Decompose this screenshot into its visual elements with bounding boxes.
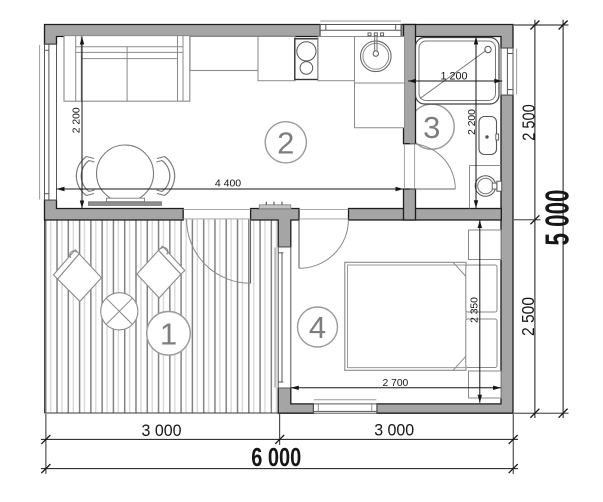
- svg-text:2 500: 2 500: [518, 297, 538, 336]
- svg-text:2 350: 2 350: [470, 297, 481, 323]
- svg-text:3 000: 3 000: [374, 422, 414, 440]
- svg-text:5 000: 5 000: [540, 190, 577, 246]
- svg-text:4: 4: [309, 310, 326, 345]
- svg-text:3: 3: [423, 110, 440, 145]
- svg-text:4 400: 4 400: [215, 177, 241, 189]
- svg-text:2 200: 2 200: [71, 107, 82, 133]
- svg-text:2: 2: [277, 125, 294, 160]
- svg-text:2 700: 2 700: [383, 378, 409, 389]
- svg-text:2 200: 2 200: [467, 109, 478, 135]
- svg-text:3 000: 3 000: [142, 422, 182, 440]
- svg-text:1 200: 1 200: [440, 71, 467, 83]
- svg-text:6 000: 6 000: [251, 444, 301, 472]
- svg-text:2 500: 2 500: [519, 104, 539, 141]
- svg-text:1: 1: [160, 316, 177, 351]
